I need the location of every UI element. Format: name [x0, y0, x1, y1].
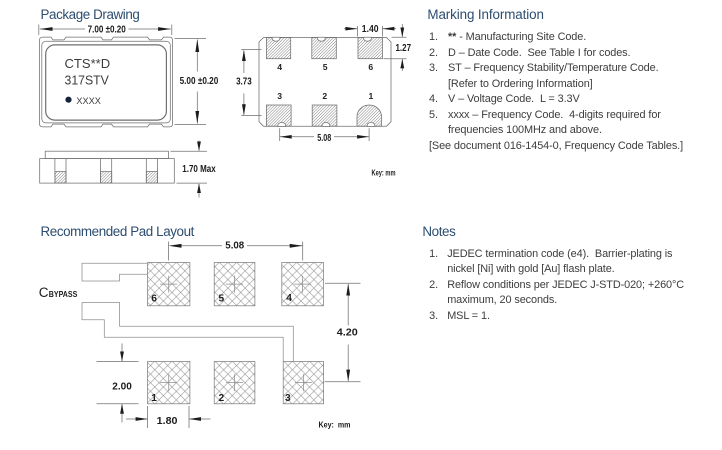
svg-text:7.00 ±0.20: 7.00 ±0.20	[88, 24, 127, 35]
svg-text:5: 5	[323, 62, 328, 72]
svg-text:4: 4	[286, 293, 292, 304]
svg-text:3: 3	[277, 91, 282, 101]
svg-text:3.73: 3.73	[236, 76, 252, 87]
svg-text:6: 6	[151, 294, 157, 305]
svg-text:1: 1	[151, 393, 157, 404]
svg-text:5.08: 5.08	[317, 133, 331, 144]
svg-text:2: 2	[322, 91, 327, 101]
svg-text:3: 3	[285, 393, 291, 404]
svg-text:1.70 Max: 1.70 Max	[182, 164, 216, 175]
svg-text:2: 2	[219, 393, 225, 404]
svg-text:BYPASS: BYPASS	[49, 290, 78, 299]
svg-text:5.08: 5.08	[225, 240, 244, 251]
svg-text:C: C	[39, 285, 49, 300]
svg-text:6: 6	[368, 62, 373, 72]
svg-text:4.20: 4.20	[337, 328, 359, 339]
svg-text:5.00 ±0.20: 5.00 ±0.20	[180, 76, 219, 87]
svg-text:CTS**D: CTS**D	[65, 56, 111, 71]
svg-text:1: 1	[369, 91, 374, 101]
svg-text:2.00: 2.00	[112, 382, 132, 393]
svg-text:Key: mm: Key: mm	[319, 420, 351, 429]
svg-text:1.40: 1.40	[362, 24, 379, 35]
svg-text:5: 5	[219, 294, 225, 305]
svg-text:XXXX: XXXX	[76, 96, 101, 107]
svg-text:4: 4	[277, 62, 282, 72]
svg-text:1.80: 1.80	[157, 416, 178, 427]
svg-text:Key: mm: Key: mm	[372, 169, 396, 178]
svg-text:317STV: 317STV	[65, 73, 110, 88]
svg-text:1.27: 1.27	[396, 43, 412, 54]
